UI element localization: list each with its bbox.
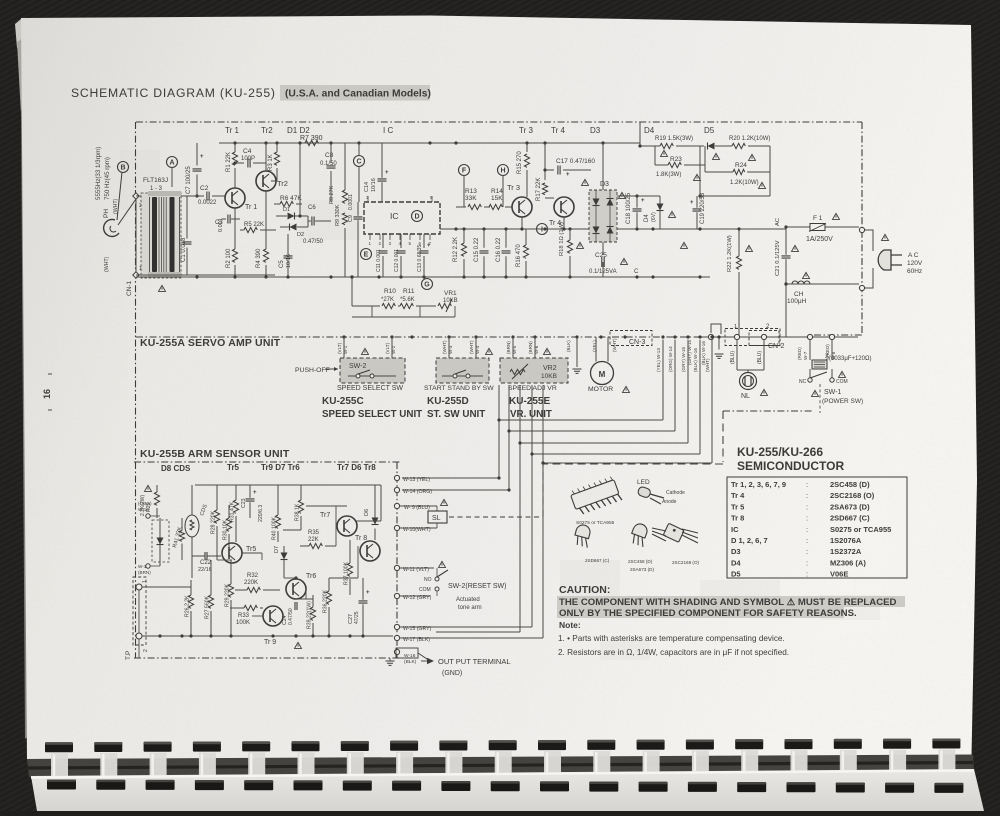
svg-text:W-4: W-4 [475,345,480,354]
svg-text:CN-3: CN-3 [629,339,645,346]
svg-text:D4: D4 [644,214,650,222]
svg-text:10KB: 10KB [541,373,557,380]
svg-text:1.8K(3W): 1.8K(3W) [656,172,681,178]
svg-text:+: + [566,172,570,178]
svg-text::: : [806,480,808,489]
svg-text:R9 330K: R9 330K [335,204,341,226]
svg-text:CN-1: CN-1 [126,280,133,296]
svg-text:F: F [462,168,467,175]
svg-text::: : [806,514,808,523]
svg-text:ST. SW UNIT: ST. SW UNIT [427,409,485,420]
svg-text:Tr7 D6 Tr8: Tr7 D6 Tr8 [337,463,376,472]
svg-text:D5: D5 [731,570,741,579]
svg-text:Tr2: Tr2 [261,126,273,135]
svg-text:D3: D3 [731,547,741,556]
svg-text:D: D [414,214,419,221]
svg-text:(BRN): (BRN) [528,341,533,354]
svg-text:(BLK): (BLK) [566,340,571,352]
svg-text:D6: D6 [364,509,370,516]
svg-text:I C: I C [383,126,393,135]
svg-text:C18 100/25: C18 100/25 [626,192,632,224]
svg-text:R38 1K: R38 1K [295,503,301,521]
svg-text:+: + [690,200,694,206]
svg-text:R37 100K: R37 100K [344,561,350,585]
svg-text:SL: SL [432,515,441,522]
svg-text:R10: R10 [384,288,396,295]
svg-text:(BLU): (BLU) [757,351,763,364]
svg-text:R40 100K: R40 100K [272,516,278,540]
svg-text:Cathode: Cathode [666,490,685,496]
svg-text:D3: D3 [600,181,609,188]
svg-text:0.1/50: 0.1/50 [320,161,337,167]
svg-text:C14: C14 [364,182,370,192]
svg-text:R6 47K: R6 47K [280,195,302,202]
svg-text:15K: 15K [491,195,503,202]
svg-text:R2 100: R2 100 [226,248,232,268]
svg-text:VR. UNIT: VR. UNIT [510,409,552,420]
svg-text:(VLT): (VLT) [337,342,342,354]
svg-text:100P: 100P [241,156,255,162]
svg-text:R11: R11 [403,288,415,295]
svg-text:16: 16 [42,389,52,399]
svg-text:R22 1.2K(1W): R22 1.2K(1W) [727,235,733,272]
svg-text:Tr 8: Tr 8 [355,535,367,542]
svg-text:R20 1.2K(10W): R20 1.2K(10W) [729,136,770,142]
svg-text:C25: C25 [595,252,607,259]
svg-text:NL: NL [741,393,750,400]
svg-text:2SA673 (D): 2SA673 (D) [830,502,870,511]
svg-text:2SD667 (C): 2SD667 (C) [830,514,870,523]
svg-text:47/25: 47/25 [354,611,360,624]
svg-text:+: + [253,490,257,496]
svg-text:10/16: 10/16 [371,178,377,192]
svg-text:(BRN): (BRN) [506,341,511,354]
svg-text:+: + [427,243,431,249]
svg-text:*27K: *27K [381,297,394,303]
svg-text:C: C [634,269,639,275]
svg-text:(RED): (RED) [797,347,802,360]
svg-text:Tr5: Tr5 [246,546,256,553]
svg-text:C: C [356,159,361,166]
svg-text:C8: C8 [325,152,334,159]
svg-text:R29 220K: R29 220K [225,583,231,607]
svg-text:W-2: W-2 [391,345,396,354]
svg-text:KU-255A SERVO AMP UNIT: KU-255A SERVO AMP UNIT [140,337,281,349]
svg-text:CAUTION:: CAUTION: [559,584,610,596]
svg-text:Anode: Anode [662,499,677,505]
svg-text::: : [806,502,808,511]
svg-text:(WHT): (WHT) [469,340,474,354]
svg-text:W-6: W-6 [534,345,539,354]
svg-text::: : [806,547,808,556]
svg-text:Tr 1: Tr 1 [245,204,257,211]
svg-text:C16 0.22: C16 0.22 [496,237,502,262]
svg-text:Tr 5: Tr 5 [731,502,744,511]
svg-text:Tr 8: Tr 8 [731,514,744,523]
svg-text:22/16: 22/16 [198,567,212,573]
svg-text:Tr 4: Tr 4 [551,126,565,135]
svg-text:R12 2.2K: R12 2.2K [453,237,459,262]
svg-text:C5: C5 [279,260,285,268]
svg-text:R17 22K: R17 22K [536,178,542,201]
svg-text:33K: 33K [465,195,477,202]
svg-text:KU-255B ARM SENSOR UNIT: KU-255B ARM SENSOR UNIT [140,448,290,460]
svg-text:Tr9 D7 Tr6: Tr9 D7 Tr6 [261,463,300,472]
svg-text:SW-1: SW-1 [824,389,841,396]
svg-text:COM: COM [419,587,431,593]
svg-text:KU-255E: KU-255E [509,396,550,407]
svg-text:VR2: VR2 [543,365,557,372]
svg-text:W-1: W-1 [343,345,348,354]
svg-text:W-18: W-18 [138,507,149,512]
svg-text:(VLT): (VLT) [385,342,390,354]
svg-text:NO: NO [424,577,432,583]
svg-text:R14: R14 [491,188,503,195]
svg-text:Actuated: Actuated [456,597,480,603]
svg-text:W-3: W-3 [448,345,453,354]
svg-text:60Hz: 60Hz [907,268,922,275]
svg-text:(BLK) W-16: (BLK) W-16 [693,348,698,372]
svg-text:R24: R24 [735,162,747,169]
svg-text:Tr5: Tr5 [227,463,240,472]
svg-text:R32: R32 [247,573,259,579]
svg-text:220K: 220K [244,580,258,586]
svg-text:D4: D4 [644,126,655,135]
svg-text:R4 390: R4 390 [256,248,262,268]
svg-text:D3: D3 [590,126,601,135]
svg-text:W-13 (YEL): W-13 (YEL) [403,477,430,483]
svg-text:R28 220K: R28 220K [211,510,217,534]
svg-text:COM: COM [836,379,848,385]
svg-text:D1: D1 [283,207,290,213]
svg-text:R30 10K: R30 10K [223,519,229,540]
svg-text:C23: C23 [241,498,247,508]
svg-text:OUT PUT TERMINAL: OUT PUT TERMINAL [438,657,511,666]
svg-text:Tr 3: Tr 3 [519,126,533,135]
svg-text:(BRN): (BRN) [138,570,151,575]
svg-text:(WHT): (WHT) [705,358,710,372]
svg-text:THE COMPONENT WITH SHADING AND: THE COMPONENT WITH SHADING AND SYMBOL ⚠ … [559,597,897,608]
svg-text:R23: R23 [670,156,682,163]
svg-text:750 Hz(45 rpm): 750 Hz(45 rpm) [104,157,111,200]
svg-text:PH: PH [103,209,110,218]
svg-text:T.P: T.P [125,651,132,660]
svg-text:R3 1K: R3 1K [268,154,274,171]
svg-text:MOTOR: MOTOR [588,386,613,393]
svg-text:2SA673 (D): 2SA673 (D) [630,567,654,572]
svg-text:22K: 22K [308,537,319,543]
svg-text:Tr2: Tr2 [277,179,288,188]
svg-text:Tr 9: Tr 9 [264,639,276,646]
svg-text:R39 22(1W): R39 22(1W) [307,601,313,629]
svg-text:C7 100/25: C7 100/25 [186,166,192,194]
svg-text:(U.S.A. and Canadian Models): (U.S.A. and Canadian Models) [285,89,431,100]
svg-text:R36 220K: R36 220K [323,589,329,613]
svg-text:C13 0.68/35: C13 0.68/35 [417,245,423,272]
svg-text:(0033μF+120Ω): (0033μF+120Ω) [829,356,871,362]
svg-text:C11 0.001: C11 0.001 [376,249,382,272]
svg-text:+: + [200,154,204,160]
svg-text:0.001: 0.001 [218,218,224,232]
svg-text:Note:: Note: [559,620,581,630]
svg-text:MZ306 (A): MZ306 (A) [830,558,866,567]
svg-text:Tr7: Tr7 [320,512,330,519]
svg-text:W-14 (ORG): W-14 (ORG) [403,489,432,495]
svg-text:C9: C9 [348,215,354,222]
svg-text:KU-255C: KU-255C [322,396,364,407]
svg-text:CH: CH [794,291,804,298]
svg-text:AC: AC [775,218,781,226]
svg-text:tone arm: tone arm [458,605,482,611]
svg-text:2SC458 (D): 2SC458 (D) [628,559,653,564]
svg-text:R16 470: R16 470 [516,244,522,267]
svg-text:(ORG) W-14: (ORG) W-14 [668,346,673,372]
svg-text:(BLK): (BLK) [404,659,417,665]
svg-text:(BLU): (BLU) [730,351,736,364]
svg-text::: : [806,558,808,567]
svg-text:SCHEMATIC DIAGRAM (KU-255): SCHEMATIC DIAGRAM (KU-255) [71,86,276,100]
svg-text:R35: R35 [308,530,320,536]
svg-text:C21 0.1/125V: C21 0.1/125V [775,240,781,276]
svg-text:2SC2168 (O): 2SC2168 (O) [830,491,875,500]
svg-text:+: + [641,198,645,204]
svg-text:KU-255/KU-266: KU-255/KU-266 [737,445,823,459]
svg-text:120V: 120V [907,260,923,267]
svg-text:I: I [541,227,543,234]
svg-text:W-7: W-7 [803,351,808,360]
svg-text:CN-2: CN-2 [768,343,784,350]
svg-text:LED: LED [637,479,650,486]
svg-text:S0275 or TCA955: S0275 or TCA955 [830,525,891,534]
svg-text:SPEED SELECT SW: SPEED SELECT SW [337,385,403,392]
svg-text:1S2076A: 1S2076A [830,536,862,545]
svg-text:100μH: 100μH [787,298,807,305]
svg-text:2SC458 (D): 2SC458 (D) [830,480,870,489]
svg-text:0.47/50: 0.47/50 [288,608,294,625]
svg-text:Tr6: Tr6 [306,573,316,580]
svg-text:1: 1 [142,580,148,583]
svg-text:1. • Parts with asterisks are: 1. • Parts with asterisks are temperatur… [558,634,785,643]
svg-text:D5: D5 [704,126,715,135]
svg-text:2SD667 (C): 2SD667 (C) [585,558,610,563]
svg-text:C12 0.001: C12 0.001 [394,249,400,272]
svg-text:R1 22K: R1 22K [226,152,232,172]
svg-text:E: E [364,252,369,259]
svg-text:Tr 4: Tr 4 [731,491,745,500]
svg-text:1: 1 [734,324,737,330]
svg-text:R27 560K: R27 560K [205,595,211,619]
svg-text::: : [806,491,808,500]
svg-text:*5.6K: *5.6K [400,297,415,303]
svg-text:R18 1Ω (1W): R18 1Ω (1W) [559,222,565,256]
svg-text:R13: R13 [465,188,477,195]
svg-text:(GRY) W-15: (GRY) W-15 [681,346,686,372]
svg-text:NC: NC [799,379,807,385]
svg-text:A C: A C [908,252,919,259]
svg-text:(POWER SW): (POWER SW) [822,398,863,405]
svg-text:H: H [500,168,505,175]
svg-text:D 1, 2, 6, 7: D 1, 2, 6, 7 [731,536,768,545]
svg-text:(GND): (GND) [442,670,462,677]
svg-text:100K: 100K [236,620,250,626]
svg-text:F 1: F 1 [813,215,823,222]
svg-text:2. Resistors are in Ω, 1/4W, c: 2. Resistors are in Ω, 1/4W, capacitors … [558,648,789,657]
svg-text:R5 22K: R5 22K [244,222,264,228]
svg-text:SPEED SELECT UNIT: SPEED SELECT UNIT [322,409,422,420]
svg-text:G: G [424,282,430,289]
svg-text:C1 0.018: C1 0.018 [181,237,187,262]
svg-text:D4: D4 [731,558,741,567]
svg-text:1.2K(10W): 1.2K(10W) [730,180,759,186]
svg-text:B: B [120,165,125,172]
svg-text:R19 1.5K(3W): R19 1.5K(3W) [655,136,693,142]
svg-text:+: + [366,590,370,596]
svg-text:IC: IC [731,525,739,534]
svg-text:2SC2168 (O): 2SC2168 (O) [672,560,700,565]
svg-text:SW-2: SW-2 [349,363,366,370]
svg-text:IC: IC [390,211,399,221]
svg-text:(WHT): (WHT) [104,256,110,272]
svg-text:R33: R33 [238,613,250,619]
svg-text:C6: C6 [308,205,316,211]
svg-text:V06E: V06E [830,570,848,579]
svg-text:VR1: VR1 [444,290,457,297]
svg-text:2: 2 [143,649,149,652]
svg-text:220/6.3: 220/6.3 [258,505,264,522]
svg-text:FLT163J: FLT163J [143,177,168,184]
svg-text:R31 47K: R31 47K [230,501,236,522]
svg-text:R26 2.2K: R26 2.2K [185,595,191,617]
svg-text:(WHT): (WHT) [442,340,447,354]
svg-text:R8 27K: R8 27K [329,185,335,204]
svg-text:KU-255D: KU-255D [427,396,469,407]
svg-text:D7: D7 [274,546,280,553]
svg-text:0.0022: 0.0022 [198,200,217,206]
svg-text:SW-2(RESET SW): SW-2(RESET SW) [448,583,506,590]
svg-text:(YEL) W-13: (YEL) W-13 [656,348,661,372]
svg-text:START STAND BY SW: START STAND BY SW [424,385,494,392]
svg-text:Tr 1, 2, 3, 6, 7, 9: Tr 1, 2, 3, 6, 7, 9 [731,480,786,489]
svg-text:(YEL): (YEL) [592,340,597,352]
svg-text:D8 CDS: D8 CDS [161,464,191,473]
svg-text:C22: C22 [200,560,212,566]
svg-text:D2: D2 [297,232,304,238]
svg-text:0.47/50: 0.47/50 [303,239,324,245]
svg-text:(6V): (6V) [651,212,657,222]
svg-text:C15 0.22: C15 0.22 [474,237,480,262]
svg-text:ONLY BY THE SPECIFIED COMPONEN: ONLY BY THE SPECIFIED COMPONENT FOR SAFE… [559,608,857,619]
svg-text:C17 0.47/160: C17 0.47/160 [556,158,595,165]
svg-text:10/16: 10/16 [286,254,292,268]
svg-text:Tr 1: Tr 1 [225,126,239,135]
svg-text:5555Hz(33 1/3rpm): 5555Hz(33 1/3rpm) [95,147,102,200]
svg-text:D1 D2: D1 D2 [287,126,310,135]
svg-text:1A/250V: 1A/250V [806,236,833,243]
svg-text::: : [806,536,808,545]
svg-text:A: A [169,160,174,167]
svg-text:M: M [599,370,606,379]
svg-text:Tr 3: Tr 3 [507,183,520,192]
svg-text:W-5: W-5 [512,345,517,354]
svg-text:0.0001: 0.0001 [348,194,354,210]
svg-text:+: + [385,170,389,176]
svg-text:SEMICONDUCTOR: SEMICONDUCTOR [737,459,844,473]
svg-text:C4: C4 [243,148,252,155]
svg-text:(ORG): (ORG) [138,501,152,506]
svg-text:C2: C2 [200,185,209,192]
svg-text:(WHT): (WHT) [612,338,617,352]
svg-text:R15 270: R15 270 [517,151,523,174]
svg-text::: : [806,525,808,534]
svg-text::: : [806,570,808,579]
svg-text:1S2372A: 1S2372A [830,547,862,556]
svg-text:PUSH-OFF: PUSH-OFF [295,367,330,374]
